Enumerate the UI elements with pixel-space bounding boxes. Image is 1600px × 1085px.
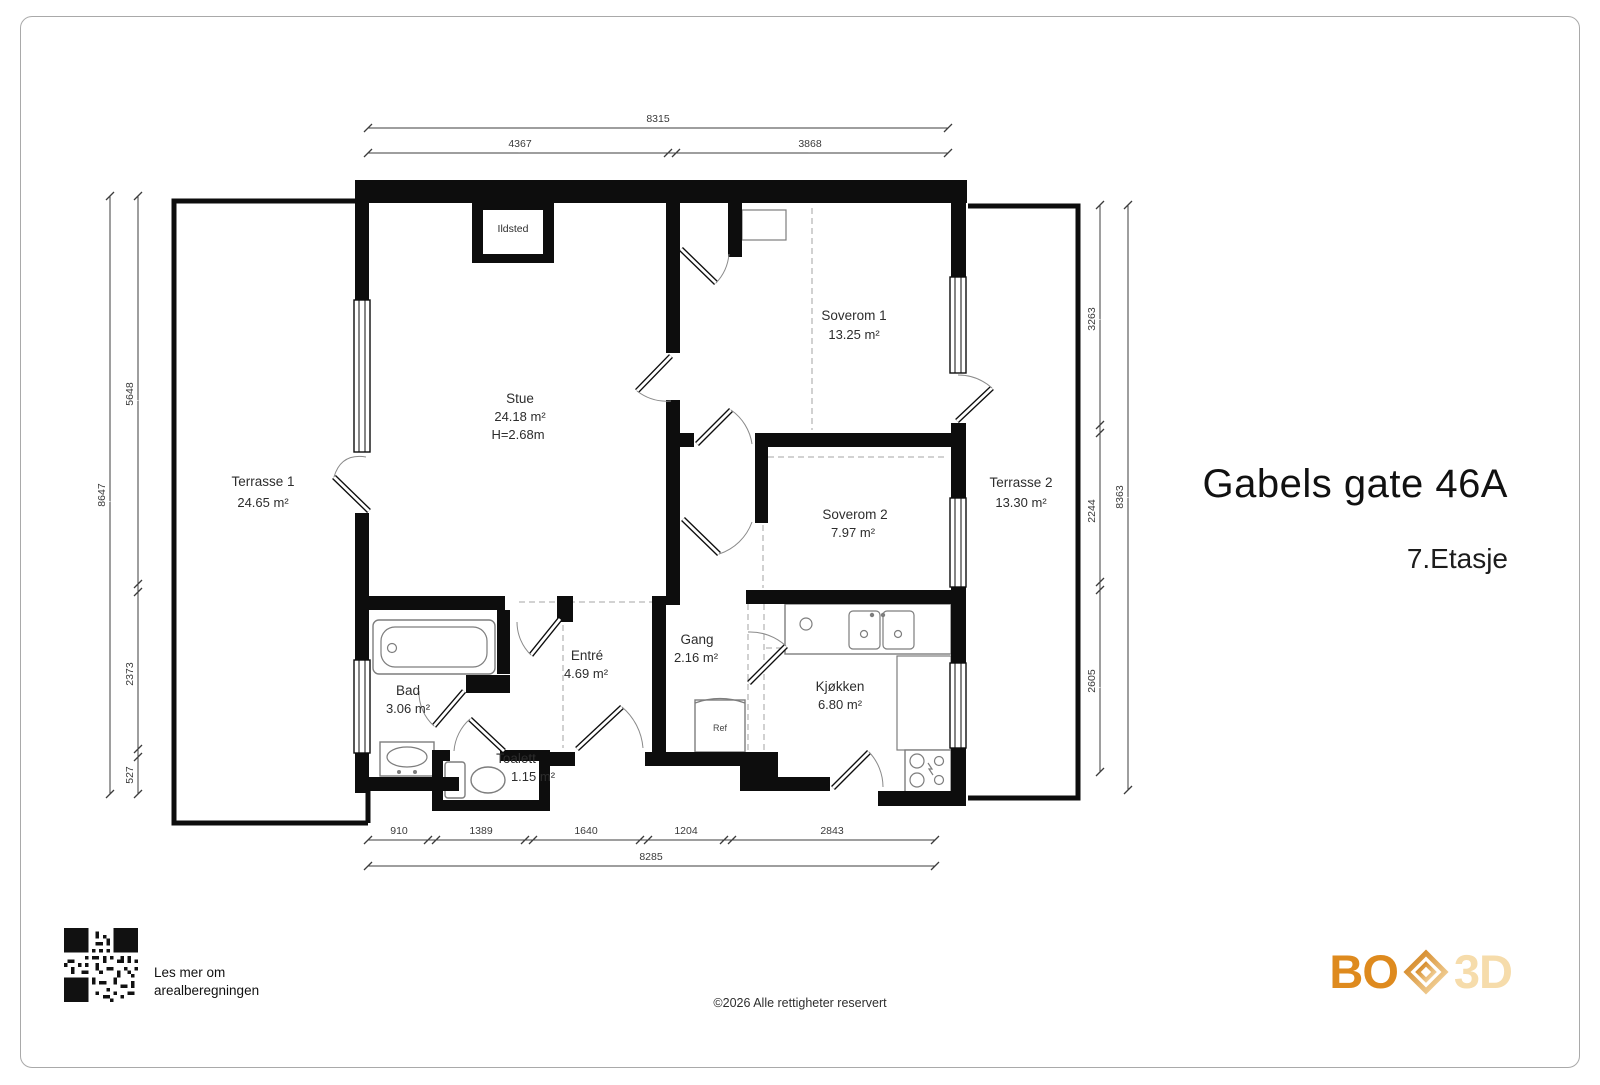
room-area-terrasse1: 24.65 m² — [237, 495, 289, 510]
window-bad — [354, 660, 370, 753]
dim-bottom-seg2: 1389 — [469, 825, 493, 837]
qr-code-icon — [64, 928, 138, 1002]
room-area-kjokken: 6.80 m² — [818, 697, 863, 712]
room-label-soverom1: Soverom 1 — [821, 308, 886, 323]
room-label-stue: Stue — [506, 391, 534, 406]
window-soverom1 — [950, 277, 966, 373]
room-area-entre: 4.69 m² — [564, 666, 609, 681]
room-area-terrasse2: 13.30 m² — [995, 495, 1047, 510]
dim-bottom-seg4: 1204 — [674, 825, 698, 837]
room-area-soverom1: 13.25 m² — [828, 327, 880, 342]
room-label-terrasse1: Terrasse 1 — [231, 474, 294, 489]
room-label-terrasse2: Terrasse 2 — [989, 475, 1052, 490]
dim-right-seg1: 3263 — [1086, 307, 1098, 331]
logo-3d-text: 3D — [1454, 944, 1512, 999]
dim-left-seg2: 2373 — [124, 662, 136, 686]
wardrobe-icon — [742, 210, 786, 240]
bathtub-icon — [373, 620, 495, 674]
dim-bottom-seg5: 2843 — [820, 825, 844, 837]
page-title: Gabels gate 46A — [1203, 462, 1509, 507]
fridge-label: Ref — [713, 723, 728, 733]
door-soverom2 — [683, 519, 752, 554]
fridge-icon: Ref — [695, 699, 745, 753]
room-label-soverom2: Soverom 2 — [822, 507, 887, 522]
door-kjokken — [748, 632, 786, 683]
dim-left-total: 8647 — [96, 483, 108, 507]
door-terrasse1 — [334, 456, 369, 511]
dim-bottom-seg3: 1640 — [574, 825, 598, 837]
room-area-toalett: 1.15 m² — [511, 769, 556, 784]
room-label-entre: Entré — [571, 648, 603, 663]
terrace1-walls — [174, 201, 368, 823]
kitchen-counter — [897, 656, 951, 750]
door-soverom1 — [681, 249, 729, 283]
fireplace-label: Ildsted — [498, 223, 529, 235]
qr-caption-line1: Les mer om — [154, 964, 259, 982]
room-label-kjokken: Kjøkken — [816, 679, 865, 694]
dim-left-seg1: 5648 — [124, 382, 136, 406]
door-entre — [577, 707, 643, 749]
door-entrance — [833, 752, 883, 788]
room-area-soverom2: 7.97 m² — [831, 525, 876, 540]
room-label-bad: Bad — [396, 683, 420, 698]
room-label-gang: Gang — [680, 632, 713, 647]
terrace-outlines — [174, 201, 1078, 823]
room-area-stue: 24.18 m² — [494, 409, 546, 424]
dim-top-seg2: 3868 — [798, 138, 822, 150]
dim-top-seg1: 4367 — [508, 138, 532, 150]
room-height-stue: H=2.68m — [491, 427, 544, 442]
door-stue — [637, 356, 671, 401]
dim-right-seg2: 2244 — [1086, 499, 1098, 523]
walls — [355, 180, 967, 811]
door-terrasse2 — [957, 375, 992, 421]
fireplace-icon: Ildsted — [482, 209, 544, 255]
bathroom-sink-icon — [380, 742, 434, 776]
room-area-bad: 3.06 m² — [386, 701, 431, 716]
dimensions: 8315 4367 3868 910 1389 1640 1204 2843 8… — [96, 113, 1132, 870]
stove-icon — [905, 750, 951, 792]
window-kjokken — [950, 663, 966, 748]
window-soverom2 — [950, 498, 966, 587]
door-entre-stue — [517, 619, 560, 655]
bo3d-logo: BO 3D — [1329, 944, 1512, 999]
diamond-icon — [1403, 949, 1449, 995]
room-area-gang: 2.16 m² — [674, 650, 719, 665]
dim-right-seg3: 2605 — [1086, 669, 1098, 693]
floor-subtitle: 7.Etasje — [1203, 543, 1509, 575]
door-toalett — [454, 719, 504, 751]
kitchen-sink-icon — [785, 604, 951, 654]
dim-top-total: 8315 — [646, 113, 670, 125]
dim-left-seg3: 527 — [124, 766, 136, 784]
dim-bottom-seg1: 910 — [390, 825, 408, 837]
dim-right-total: 8363 — [1114, 485, 1126, 509]
window-stue — [354, 300, 370, 452]
dim-bottom-total: 8285 — [639, 851, 663, 863]
logo-bo-text: BO — [1329, 944, 1398, 999]
door-hall-nook — [697, 410, 752, 444]
room-label-toalett: Toalett — [496, 751, 536, 766]
